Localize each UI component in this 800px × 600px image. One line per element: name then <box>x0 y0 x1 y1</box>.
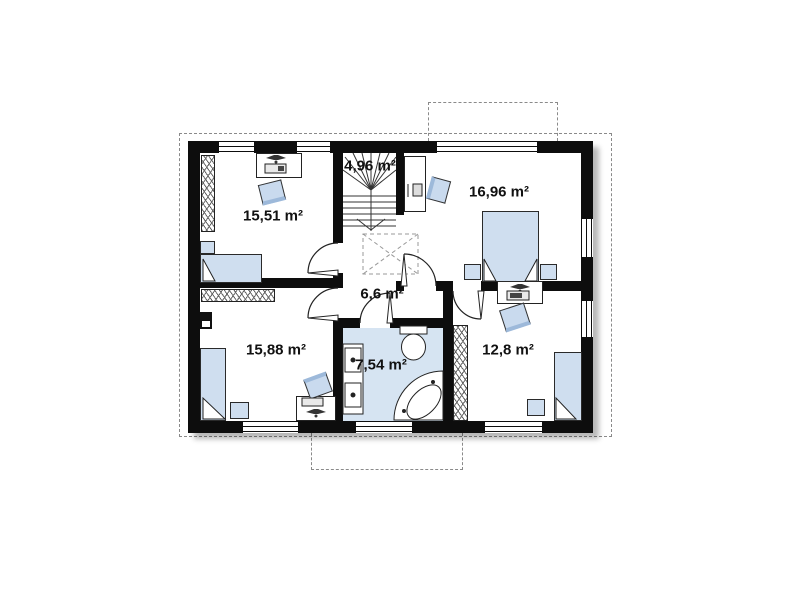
double-bed <box>482 211 539 282</box>
interior-wall <box>436 281 453 291</box>
room-area-label: 16,96 m² <box>469 184 529 201</box>
window <box>218 141 255 153</box>
dormer-outline-bottom <box>311 433 463 470</box>
wardrobe <box>453 325 468 421</box>
interior-wall <box>396 153 404 215</box>
interior-wall <box>343 318 360 328</box>
desk <box>296 396 336 421</box>
wardrobe <box>201 155 215 232</box>
window <box>355 421 413 433</box>
interior-wall <box>443 291 453 421</box>
wardrobe <box>201 289 275 302</box>
bathroom-floor <box>343 328 443 421</box>
window <box>296 141 331 153</box>
window <box>581 218 593 258</box>
floor-plan-canvas: 15,51 m² 4,96 m² 16,96 m² 6,6 m² 15,88 m… <box>0 0 800 600</box>
window <box>242 421 299 433</box>
room-area-label: 6,6 m² <box>360 286 403 303</box>
nightstand <box>464 264 481 280</box>
dormer-outline-top <box>428 102 558 141</box>
nightstand <box>527 399 545 416</box>
single-bed <box>554 352 582 421</box>
window <box>484 421 543 433</box>
room-area-label: 15,88 m² <box>246 342 306 359</box>
nightstand <box>230 402 249 419</box>
room-area-label: 4,96 m² <box>344 158 396 175</box>
nightstand <box>200 241 215 254</box>
desk <box>404 156 426 212</box>
window <box>581 300 593 338</box>
desk <box>497 281 543 304</box>
interior-wall <box>333 153 343 243</box>
desk <box>256 153 302 178</box>
nightstand <box>540 264 557 280</box>
single-bed <box>200 348 226 421</box>
room-area-label: 15,51 m² <box>243 208 303 225</box>
room-area-label: 7,54 m² <box>355 357 407 374</box>
interior-wall <box>390 318 443 328</box>
room-area-label: 12,8 m² <box>482 342 534 359</box>
window <box>436 141 538 153</box>
single-bed <box>200 254 262 283</box>
interior-wall <box>333 273 343 288</box>
